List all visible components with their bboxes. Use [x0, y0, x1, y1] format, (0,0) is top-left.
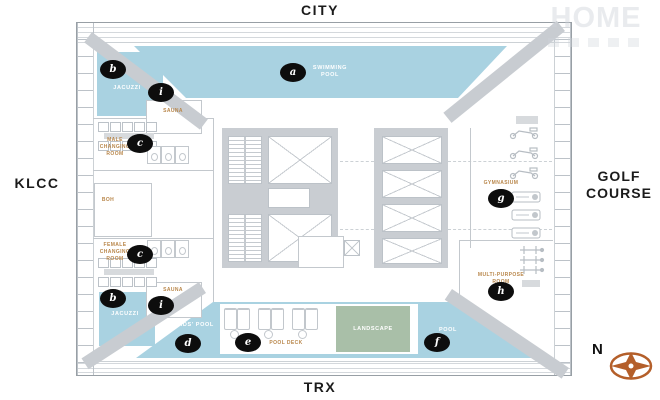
side-table — [264, 330, 273, 339]
bench — [104, 269, 154, 275]
gym-mat-icon — [516, 116, 538, 124]
treadmill-icon — [512, 228, 540, 238]
marker-g: g — [488, 189, 514, 208]
toilet-stall — [161, 240, 175, 258]
lounge-chair — [271, 308, 284, 330]
elevator-shaft — [268, 136, 332, 184]
frame-line — [77, 368, 571, 369]
marker-h: h — [488, 282, 514, 301]
toilet-stall — [175, 240, 189, 258]
marker-b-top: b — [100, 60, 126, 79]
facade-right — [554, 23, 571, 375]
elevator-shaft — [382, 136, 442, 164]
grid-line — [340, 161, 374, 162]
direction-label-city: CITY — [282, 2, 358, 19]
swimming-pool-label: SWIMMING POOL — [312, 65, 348, 79]
sauna-bottom-label: SAUNA — [146, 287, 200, 294]
service-room — [298, 236, 344, 268]
marker-i-bottom: i — [148, 296, 174, 315]
barbell-icon — [520, 256, 544, 264]
toilet-stall — [175, 146, 189, 164]
boh-room — [94, 183, 152, 237]
landscape-area: LANDSCAPE — [336, 306, 410, 352]
pool-deck-label: POOL DECK — [262, 340, 310, 347]
lounge-chair — [237, 308, 250, 330]
gym-equipment-icons — [504, 116, 550, 242]
north-label: N — [592, 341, 603, 358]
wall — [93, 238, 213, 239]
barbell-icon — [520, 246, 544, 254]
stairwell — [228, 214, 262, 262]
exercise-bike-icon — [511, 168, 538, 179]
marker-i-top: i — [148, 83, 174, 102]
watermark-subline — [548, 38, 648, 47]
exercise-bike-icon — [511, 128, 538, 139]
treadmill-icon — [512, 192, 540, 202]
marker-b-bottom: b — [100, 289, 126, 308]
compass-icon — [609, 350, 653, 382]
direction-label-golf-course: GOLF COURSE — [582, 168, 656, 202]
lockers — [98, 122, 157, 132]
watermark: HOME — [532, 2, 660, 35]
frame-line — [77, 363, 571, 364]
side-table — [298, 330, 307, 339]
direction-label-klcc: KLCC — [6, 175, 68, 192]
core-right — [374, 128, 448, 268]
marker-c-female: c — [127, 245, 153, 264]
multipurpose-wall — [459, 240, 460, 296]
lounge-chair — [305, 308, 318, 330]
landscape-label: LANDSCAPE — [353, 326, 393, 333]
elevator-shaft — [382, 170, 442, 198]
treadmill-icon — [512, 210, 540, 220]
core-lobby — [268, 188, 310, 208]
marker-f: f — [424, 333, 450, 352]
gymnasium-label: GYMNASIUM — [466, 180, 536, 187]
lounge-chair — [292, 308, 305, 330]
grid-line — [340, 229, 374, 230]
jacuzzi-bottom-label: JACUZZI — [95, 311, 155, 318]
marker-a: a — [280, 63, 306, 82]
direction-label-trx: TRX — [292, 379, 348, 396]
lounge-chair — [258, 308, 271, 330]
boh-label: BOH — [90, 197, 126, 204]
frame-line — [77, 37, 571, 38]
toilet-stall — [161, 146, 175, 164]
floor-plan-page: CITY TRX KLCC GOLF COURSE HOME — [0, 0, 660, 400]
stairwell — [228, 136, 262, 184]
marker-d: d — [175, 334, 201, 353]
wall — [93, 170, 213, 171]
exercise-bike-icon — [511, 148, 538, 159]
gym-wall — [470, 128, 471, 248]
kids-pool-label: KIDS' POOL — [163, 322, 227, 329]
marker-e: e — [235, 333, 261, 352]
wall — [213, 118, 214, 302]
frame-line — [77, 32, 571, 33]
elevator-shaft — [382, 204, 442, 232]
marker-c-male: c — [127, 134, 153, 153]
frame-line — [77, 27, 571, 28]
lockers — [98, 277, 157, 287]
frame-line — [77, 372, 571, 373]
elevator-shaft — [382, 238, 442, 264]
service-shaft — [344, 240, 360, 256]
sauna-top-label: SAUNA — [146, 108, 200, 115]
